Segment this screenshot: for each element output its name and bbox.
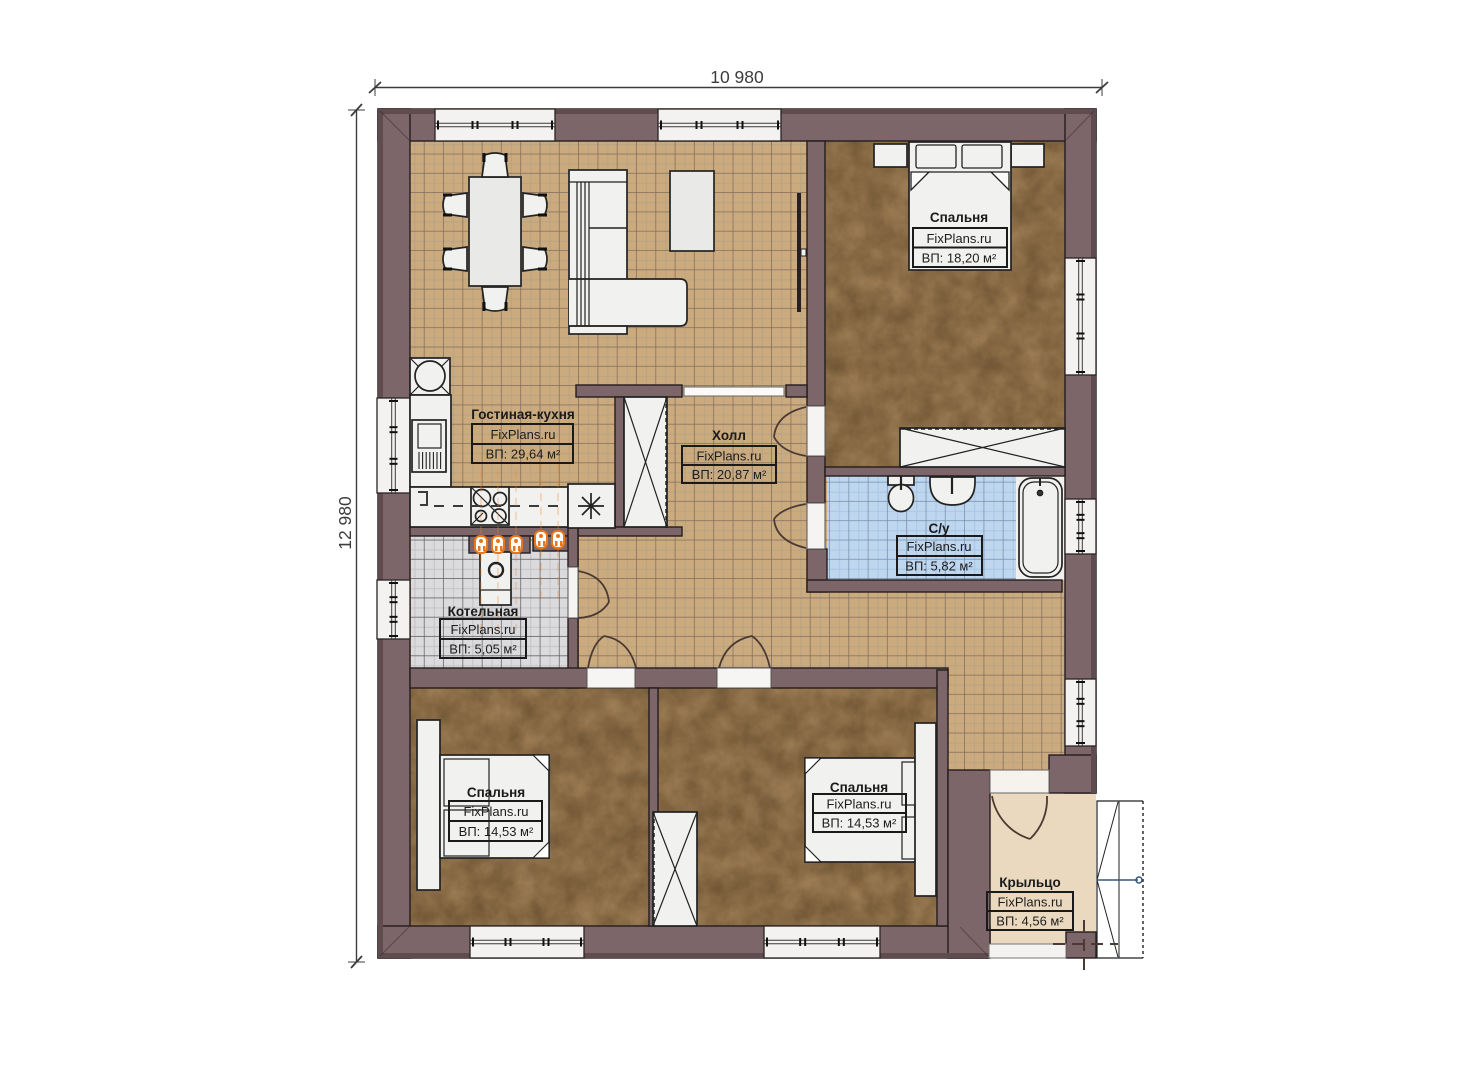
svg-text:ВП: 14,53 м²: ВП: 14,53 м² — [822, 816, 897, 831]
svg-text:ВП: 5,82 м²: ВП: 5,82 м² — [905, 559, 973, 574]
svg-text:FixPlans.ru: FixPlans.ru — [906, 539, 971, 554]
svg-text:10 980: 10 980 — [710, 67, 764, 87]
svg-text:ВП: 4,56 м²: ВП: 4,56 м² — [996, 914, 1064, 929]
svg-text:FixPlans.ru: FixPlans.ru — [490, 427, 555, 442]
svg-text:FixPlans.ru: FixPlans.ru — [826, 797, 891, 812]
svg-text:Холл: Холл — [712, 428, 746, 443]
svg-text:С/у: С/у — [928, 521, 950, 536]
svg-text:ВП: 20,87 м²: ВП: 20,87 м² — [692, 467, 767, 482]
svg-text:FixPlans.ru: FixPlans.ru — [926, 231, 991, 246]
svg-text:ВП: 29,64 м²: ВП: 29,64 м² — [486, 447, 561, 462]
svg-text:ВП: 5,05 м²: ВП: 5,05 м² — [449, 642, 517, 657]
svg-text:ВП: 14,53 м²: ВП: 14,53 м² — [459, 824, 534, 839]
svg-text:ВП: 18,20 м²: ВП: 18,20 м² — [922, 251, 997, 266]
svg-text:FixPlans.ru: FixPlans.ru — [463, 804, 528, 819]
svg-text:Спальня: Спальня — [930, 210, 988, 225]
svg-text:Котельная: Котельная — [448, 604, 519, 619]
svg-text:FixPlans.ru: FixPlans.ru — [450, 622, 515, 637]
svg-text:FixPlans.ru: FixPlans.ru — [696, 449, 761, 464]
svg-text:FixPlans.ru: FixPlans.ru — [997, 895, 1062, 910]
svg-text:12 980: 12 980 — [335, 496, 355, 550]
svg-text:Спальня: Спальня — [830, 780, 888, 795]
svg-text:Крыльцо: Крыльцо — [999, 875, 1060, 890]
svg-text:Спальня: Спальня — [467, 785, 525, 800]
svg-text:Гостиная-кухня: Гостиная-кухня — [471, 407, 574, 422]
